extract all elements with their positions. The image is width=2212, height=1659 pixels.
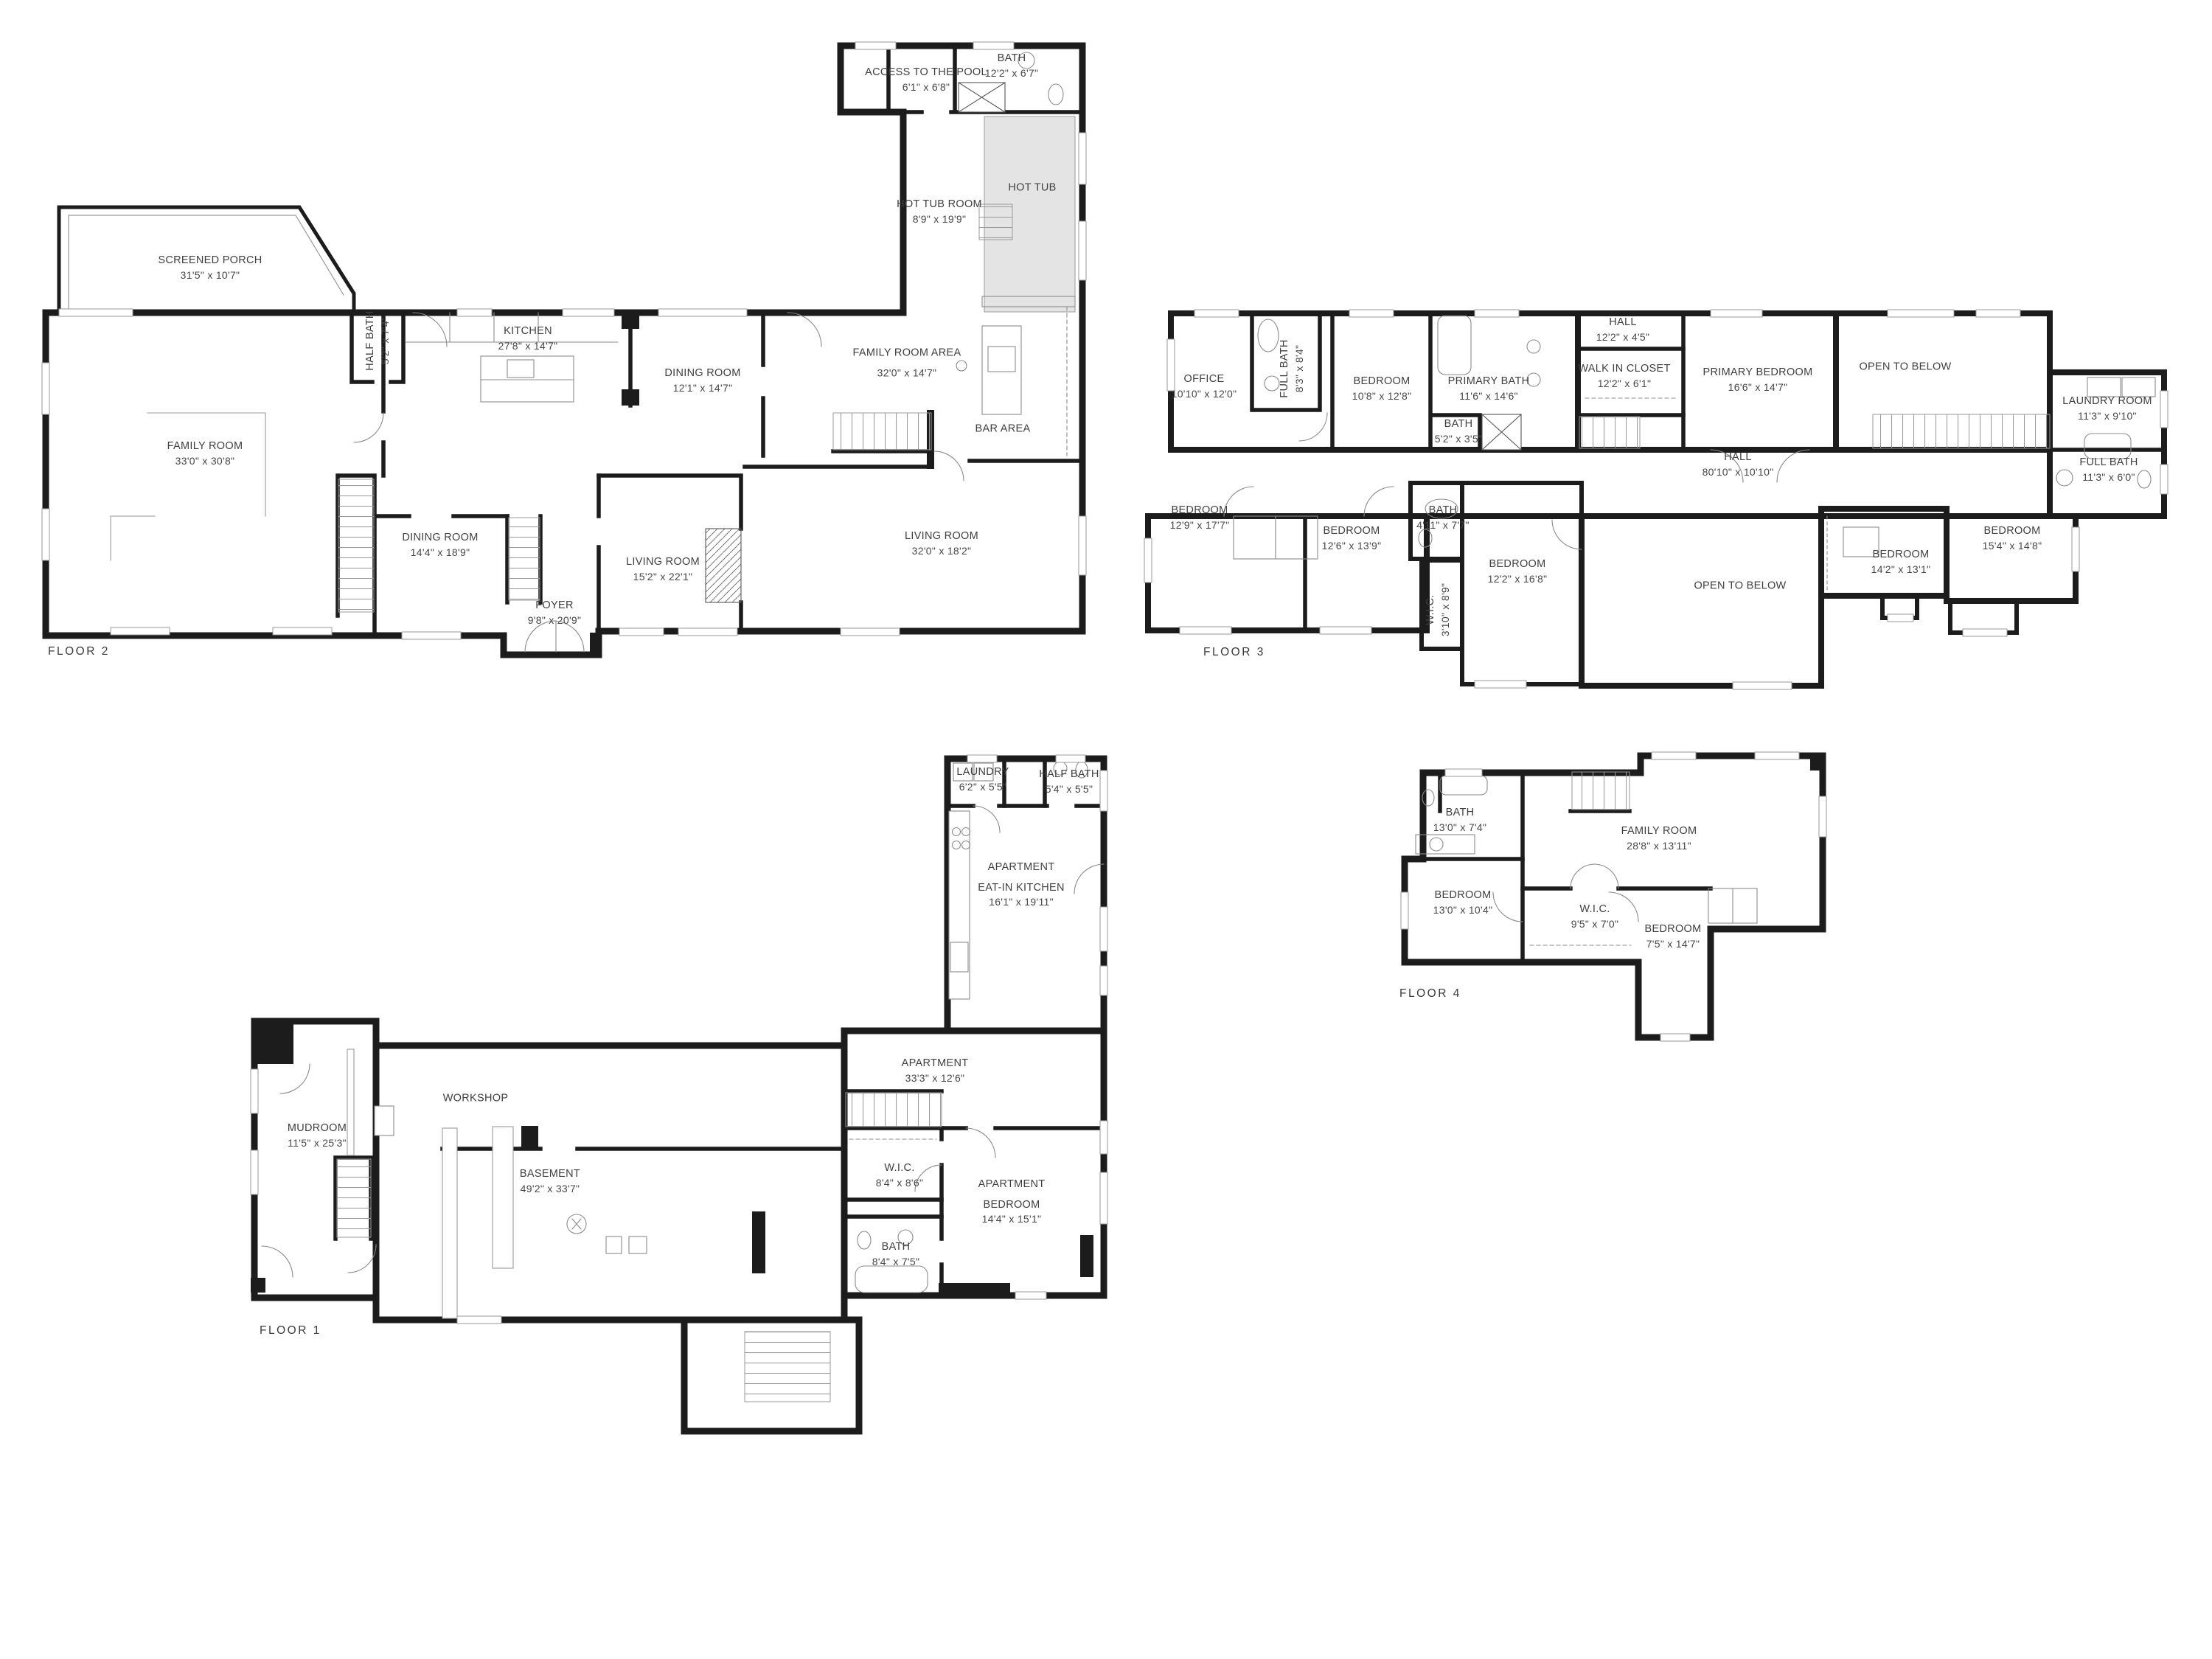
room-label-full-bath-f3: FULL BATH8'3" x 8'4": [1277, 339, 1307, 397]
room-label-half-bath-f1: HALF BATH5'4" x 5'5": [1039, 767, 1099, 796]
room-label-hall-long: HALL80'10" x 10'10": [1703, 450, 1774, 479]
toilet: [2138, 470, 2151, 488]
tub: [1438, 316, 1471, 375]
floor-2-title: FLOOR 2: [48, 645, 110, 658]
room-label-bath-411: BATH4'11" x 7'7": [1416, 503, 1470, 532]
room-label-walk-in-closet: WALK IN CLOSET12'2" x 6'1": [1578, 361, 1670, 391]
room-label-access-to-pool: ACCESS TO THE POOL6'1" x 6'8": [865, 65, 987, 94]
room-label-primary-bath: PRIMARY BATH11'6" x 14'6": [1448, 374, 1530, 403]
room-label-bedroom-122: BEDROOM12'2" x 16'8": [1488, 557, 1548, 586]
room-label-hot-tub: HOT TUB: [1008, 181, 1056, 196]
room-label-bedroom-108: BEDROOM10'8" x 12'8": [1352, 374, 1412, 403]
floor-4-stairs: [1572, 772, 1630, 810]
room-label-hall-small: HALL12'2" x 4'5": [1596, 315, 1650, 344]
room-label-mudroom: MUDROOM11'5" x 25'3": [288, 1121, 347, 1150]
tub: [1440, 776, 1487, 795]
floor-1-fixtures: [347, 762, 1088, 1318]
room-label-family-room-f2: FAMILY ROOM33'0" x 30'8": [167, 439, 243, 468]
fireplace: [706, 529, 741, 602]
sink: [2056, 470, 2073, 486]
room-label-hot-tub-room: HOT TUB ROOM8'9" x 19'9": [897, 197, 982, 226]
room-label-wic-f1: W.I.C.8'4" x 8'6": [876, 1161, 924, 1190]
room-label-foyer: FOYER9'8" x 20'9": [528, 598, 582, 627]
room-label-full-bath-113: FULL BATH11'3" x 6'0": [2079, 455, 2138, 484]
room-label-office: OFFICE10'10" x 12'0": [1172, 372, 1237, 401]
floor-2-fixtures: [111, 52, 1075, 602]
room-label-bath-f4: BATH13'0" x 7'4": [1433, 805, 1487, 835]
floor-1-title: FLOOR 1: [260, 1324, 321, 1338]
floor-3-stairs: [1579, 414, 2050, 448]
room-label-bath-52: BATH5'2" x 3'5": [1435, 417, 1483, 446]
room-label-bedroom-75: BEDROOM7'5" x 14'7": [1644, 922, 1701, 951]
kitchen-counter: [949, 811, 970, 999]
room-label-bedroom-142: BEDROOM14'2" x 13'1": [1871, 547, 1931, 577]
room-label-dining-room-small: DINING ROOM12'1" x 14'7": [664, 366, 740, 395]
room-label-open-to-below-bottom: OPEN TO BELOW: [1694, 579, 1786, 594]
room-label-family-room-f4: FAMILY ROOM28'8" x 13'11": [1621, 824, 1697, 853]
room-label-basement: BASEMENT49'2" x 33'7": [520, 1166, 580, 1196]
floor-1-plan: [251, 755, 1107, 1431]
room-label-kitchen-f2: KITCHEN27'8" x 14'7": [498, 324, 558, 353]
room-label-bedroom-126: BEDROOM12'6" x 13'9": [1322, 524, 1382, 553]
room-label-wic-f3: W.I.C.3'10" x 8'9": [1423, 583, 1453, 637]
closet: [1234, 516, 1276, 559]
tub: [855, 1266, 928, 1293]
room-label-bedroom-129: BEDROOM12'9" x 17'7": [1170, 503, 1230, 532]
room-label-screened-porch: SCREENED PORCH31'5" x 10'7": [158, 253, 262, 282]
room-label-living-room-small: LIVING ROOM15'2" x 22'1": [626, 554, 700, 584]
floor-3-title: FLOOR 3: [1203, 646, 1265, 659]
room-label-dining-room-large: DINING ROOM14'4" x 18'9": [402, 530, 478, 560]
room-label-bedroom-154: BEDROOM15'4" x 14'8": [1983, 524, 2042, 553]
open-to-below-railing: [1873, 414, 2050, 448]
room-label-open-to-below-top: OPEN TO BELOW: [1859, 360, 1951, 375]
room-label-family-room-area: FAMILY ROOM AREA32'0" x 14'7": [853, 345, 961, 380]
toilet: [1048, 84, 1063, 105]
sink: [1430, 838, 1443, 851]
floor-4-title: FLOOR 4: [1399, 987, 1461, 1001]
room-label-apartment: APARTMENT33'3" x 12'6": [902, 1056, 969, 1085]
room-label-primary-bedroom: PRIMARY BEDROOM16'6" x 14'7": [1703, 365, 1813, 394]
room-label-wic-f4: W.I.C.9'5" x 7'0": [1571, 902, 1619, 931]
room-label-bedroom-130: BEDROOM13'0" x 10'4": [1433, 888, 1493, 917]
room-label-living-room-large: LIVING ROOM32'0" x 18'2": [905, 529, 978, 558]
room-label-bath-f1: BATH8'4" x 7'5": [872, 1239, 920, 1269]
floorplan-svg: [0, 0, 2212, 1659]
room-label-half-bath-f2: HALF BATH5'2" x 7'4": [363, 310, 392, 370]
toilet: [858, 1231, 871, 1249]
room-label-laundry-room: LAUNDRY ROOM11'3" x 9'10": [2062, 394, 2152, 423]
room-label-bar-area: BAR AREA: [975, 422, 1031, 437]
room-label-workshop: WORKSHOP: [443, 1091, 509, 1107]
room-label-bath-f2: BATH12'2" x 6'7": [985, 51, 1039, 80]
closet: [1276, 516, 1318, 559]
room-label-laundry-f1: LAUNDRY6'2" x 5'5": [956, 765, 1009, 794]
room-label-apartment-bedroom: APARTMENT BEDROOM 14'4" x 15'1": [978, 1177, 1046, 1227]
floorplan-page: { "document": { "type": "multi-floor res…: [0, 0, 2212, 1659]
kitchen-island: [481, 356, 574, 402]
room-label-apartment-eat-in-kitchen: APARTMENT EAT-IN KITCHEN 16'1" x 19'11": [978, 860, 1065, 910]
